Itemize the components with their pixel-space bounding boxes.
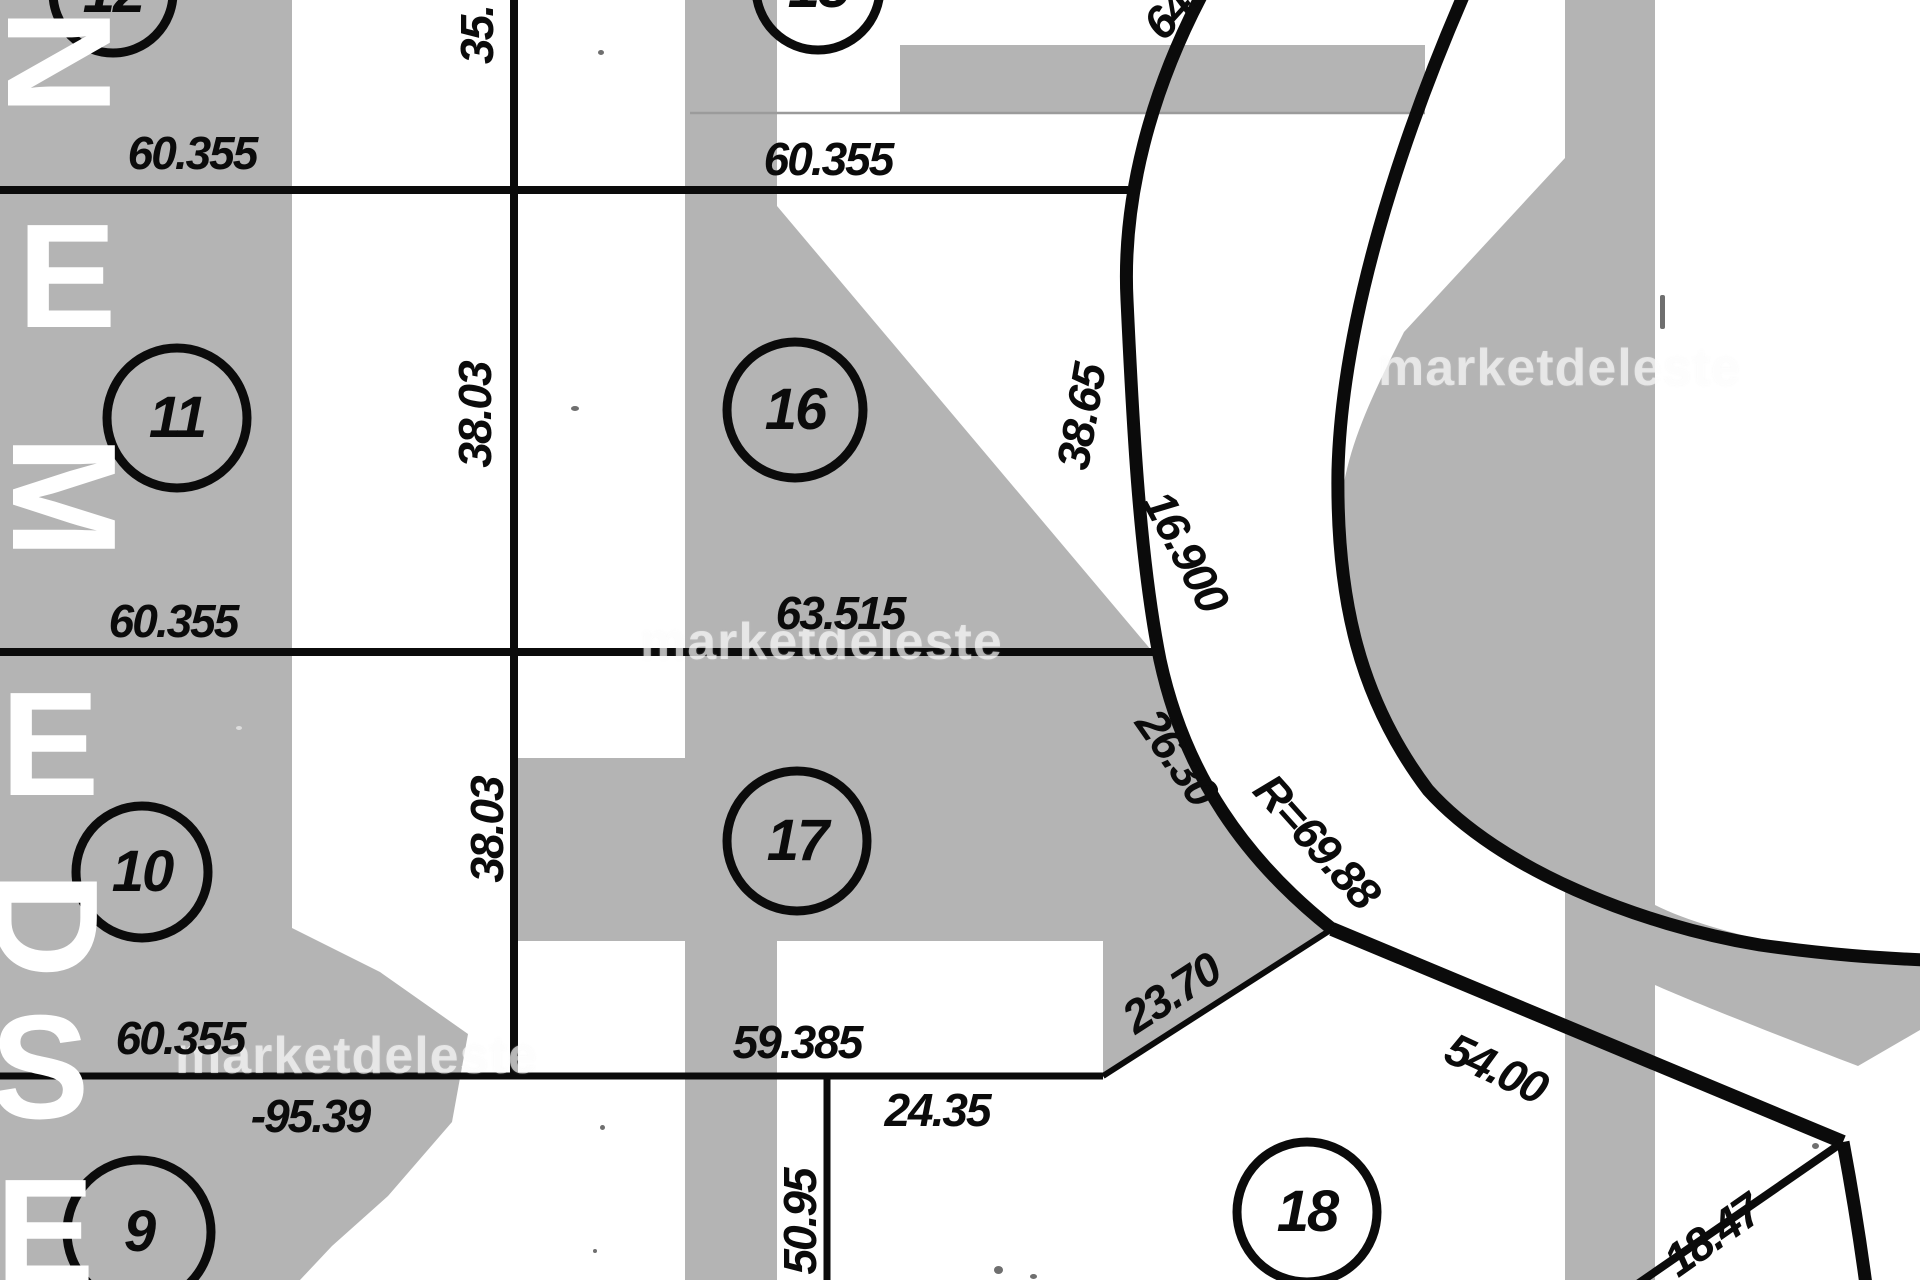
- dim-3803-lower: 38.03: [464, 777, 510, 882]
- dim-59385: 59.385: [733, 1019, 862, 1065]
- lot-number-10: 10: [112, 843, 173, 901]
- dim-60355-top-mid: 60.355: [764, 136, 893, 182]
- dim-9539: -95.39: [251, 1093, 369, 1139]
- dim-63515: 63.515: [776, 590, 905, 636]
- street-letter-d: D: [0, 872, 119, 979]
- street-letter-s: S: [0, 994, 89, 1142]
- plat-map: N E M E D S E marketdeleste marketdelest…: [0, 0, 1920, 1280]
- scan-speck: [600, 1125, 605, 1130]
- scan-speck: [593, 1249, 597, 1253]
- lot-number-15: 15: [788, 0, 849, 17]
- dim-3803-upper: 38.03: [452, 362, 498, 467]
- dim-60355-top-left: 60.355: [128, 130, 257, 176]
- street-letter-e2: E: [1, 671, 100, 819]
- dim-5095: 50.95: [777, 1169, 823, 1274]
- scan-speck: [1660, 295, 1665, 329]
- dim-60355-mid-left: 60.355: [109, 598, 238, 644]
- gray-right-column: [1565, 0, 1655, 1280]
- lot-number-11: 11: [149, 389, 205, 447]
- dim-60355-bottom-left: 60.355: [116, 1015, 245, 1061]
- street-letter-e1: E: [18, 203, 117, 351]
- gray-lot17-block: [514, 758, 777, 941]
- scan-speck: [236, 726, 242, 730]
- dim-2435: 24.35: [884, 1087, 989, 1133]
- lot-number-16: 16: [765, 381, 826, 439]
- scan-speck: [598, 50, 604, 55]
- scan-speck: [994, 1266, 1003, 1274]
- scan-speck: [1812, 1143, 1819, 1149]
- scan-speck: [1030, 1274, 1037, 1279]
- dim-35-partial: 35.: [454, 6, 500, 64]
- lot-number-18: 18: [1277, 1183, 1338, 1241]
- street-letter-m: M: [0, 435, 137, 558]
- scan-speck: [571, 406, 579, 411]
- lot-number-9: 9: [124, 1203, 154, 1261]
- lot-number-12: 12: [83, 0, 144, 22]
- lot18-corner-down: [1843, 1142, 1866, 1280]
- watermark-top-right: marketdeleste: [1378, 342, 1741, 394]
- street-letter-e3: E: [0, 1158, 94, 1280]
- lot-number-17: 17: [767, 812, 828, 870]
